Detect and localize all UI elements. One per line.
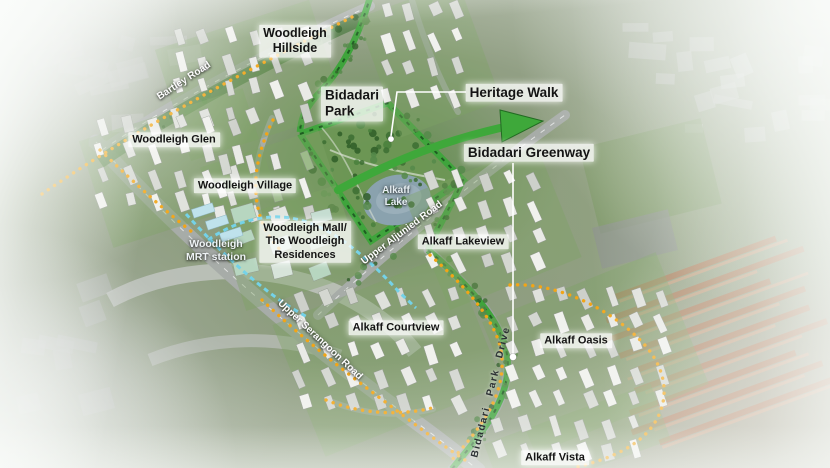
label-alkaff-vista: Alkaff Vista [521, 450, 589, 465]
label-woodleigh-glen: Woodleigh Glen [128, 132, 220, 147]
heritage-walk-leader-line [391, 92, 466, 136]
label-bidadari-greenway: Bidadari Greenway [464, 144, 594, 162]
label-woodleigh-mrt-station: Woodleigh MRT station [182, 237, 250, 265]
label-alkaff-lake: Alkaff Lake [378, 184, 414, 210]
label-heritage-walk: Heritage Walk [466, 84, 563, 102]
label-woodleigh-mall: Woodleigh Mall/ The Woodleigh Residences [259, 221, 351, 263]
map-annotations-art [0, 0, 830, 468]
heritage-walk-arrow-head [500, 110, 543, 142]
bidadari-greenway-leader-dot [510, 354, 517, 361]
label-woodleigh-hillside: Woodleigh Hillside [259, 25, 331, 58]
label-bidadari-park: Bidadari Park [321, 87, 383, 122]
label-alkaff-lakeview: Alkaff Lakeview [418, 234, 509, 249]
label-alkaff-courtview: Alkaff Courtview [349, 320, 444, 335]
bidadari-masterplan-map: Woodleigh Hillside Bidadari Park Heritag… [0, 0, 830, 468]
label-alkaff-oasis: Alkaff Oasis [540, 333, 612, 348]
label-woodleigh-village: Woodleigh Village [194, 178, 296, 193]
heritage-walk-leader-dot [388, 136, 394, 142]
